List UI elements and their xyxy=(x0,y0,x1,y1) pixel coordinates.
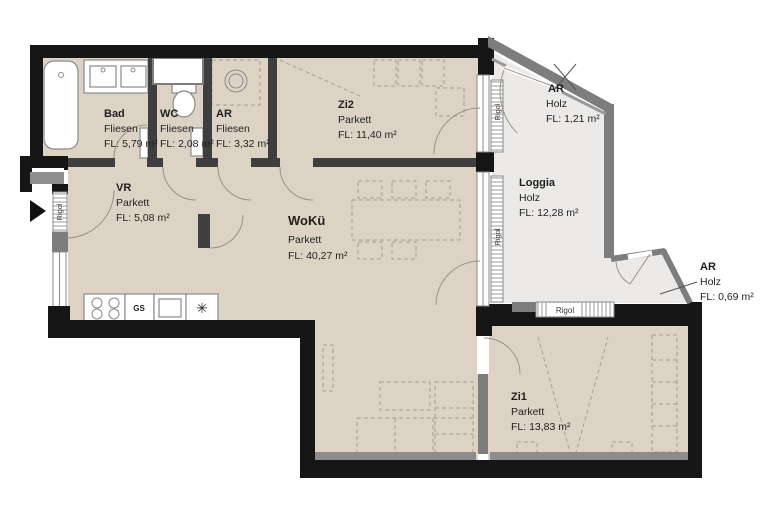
partition-hall xyxy=(313,158,478,167)
partition-vr-stub xyxy=(198,214,210,248)
room-name: AR xyxy=(700,261,716,273)
room-name: Bad xyxy=(104,108,125,120)
wall-top xyxy=(30,45,490,58)
room-name: AR xyxy=(548,83,564,95)
bathtub xyxy=(44,61,78,149)
loggia-wall-right xyxy=(604,104,614,258)
room-material: Holz xyxy=(700,276,721,288)
room-material: Fliesen xyxy=(104,123,138,135)
dishwasher-label: GS xyxy=(133,304,145,313)
partition-hall xyxy=(147,158,163,167)
shaft-niche xyxy=(153,58,203,84)
partition-hall xyxy=(196,158,218,167)
freezer-symbol: ✳ xyxy=(196,300,208,316)
wall-gray-seg xyxy=(512,302,536,312)
entrance-arrow-icon xyxy=(30,200,46,222)
room-name: Zi1 xyxy=(511,391,527,403)
room-area: FL: 13,83 m² xyxy=(511,421,571,433)
room-name: VR xyxy=(116,182,131,194)
rigol-label-bottom: Rigol xyxy=(556,306,574,315)
room-material: Fliesen xyxy=(160,123,194,135)
wall-zi1-left-top xyxy=(476,318,490,336)
room-area: FL: 3,32 m² xyxy=(216,138,270,150)
room-material: Parkett xyxy=(116,197,149,209)
room-area: FL: 2,08 m² xyxy=(160,138,214,150)
wall-bottom-left xyxy=(52,320,315,338)
room-area: FL: 0,69 m² xyxy=(700,291,754,303)
room-material: Parkett xyxy=(511,406,544,418)
partition-hall xyxy=(251,158,280,167)
wall-glazing-block-mid xyxy=(476,152,494,172)
room-area: FL: 5,79 m² xyxy=(104,138,158,150)
rigol-label-loggia-upper: Rigol xyxy=(493,103,502,120)
doorway-zi1 xyxy=(477,336,489,374)
room-name: Loggia xyxy=(519,177,556,189)
wall-extension-left xyxy=(300,336,315,462)
room-name: WC xyxy=(160,108,178,120)
washbasin xyxy=(121,66,146,87)
room-area: FL: 40,27 m² xyxy=(288,250,348,262)
room-area: FL: 5,08 m² xyxy=(116,212,170,224)
wall-zi1-left-gray xyxy=(478,374,488,454)
room-material: Fliesen xyxy=(216,123,250,135)
rigol-label-entrance: Rigol xyxy=(55,203,64,220)
wall-gray-block-left xyxy=(52,232,68,252)
room-name: WoKü xyxy=(288,213,325,228)
label-ar-east: AR Holz FL: 0,69 m² xyxy=(700,261,754,303)
room-material: Parkett xyxy=(338,114,371,126)
partition-ar-zi2 xyxy=(268,57,277,167)
floorplan-canvas: Bad Fliesen FL: 5,79 m² WC Fliesen FL: 2… xyxy=(0,0,770,522)
room-material: Holz xyxy=(519,192,540,204)
wall-left-upper xyxy=(30,45,43,156)
cooktop xyxy=(84,294,125,321)
floorplan-drawing: Bad Fliesen FL: 5,79 m² WC Fliesen FL: 2… xyxy=(0,0,770,522)
wall-zi1-right xyxy=(688,302,702,478)
room-material: Parkett xyxy=(288,234,321,246)
wall-bottom xyxy=(300,460,702,478)
sill-zi1 xyxy=(490,452,688,460)
room-name: AR xyxy=(216,108,232,120)
sill-woku xyxy=(315,452,476,460)
entrance-door-leaf xyxy=(30,172,64,184)
partition-wc-ar xyxy=(203,57,212,167)
room-name: Zi2 xyxy=(338,99,354,111)
wall-glazing-post-top xyxy=(478,45,490,75)
room-area: FL: 12,28 m² xyxy=(519,207,579,219)
room-area: FL: 1,21 m² xyxy=(546,113,600,125)
sink-basin xyxy=(159,299,181,317)
rigol-label-loggia-lower: Rigol xyxy=(493,228,502,245)
washbasin xyxy=(90,66,116,87)
room-area: FL: 11,40 m² xyxy=(338,129,397,141)
room-material: Holz xyxy=(546,98,567,110)
